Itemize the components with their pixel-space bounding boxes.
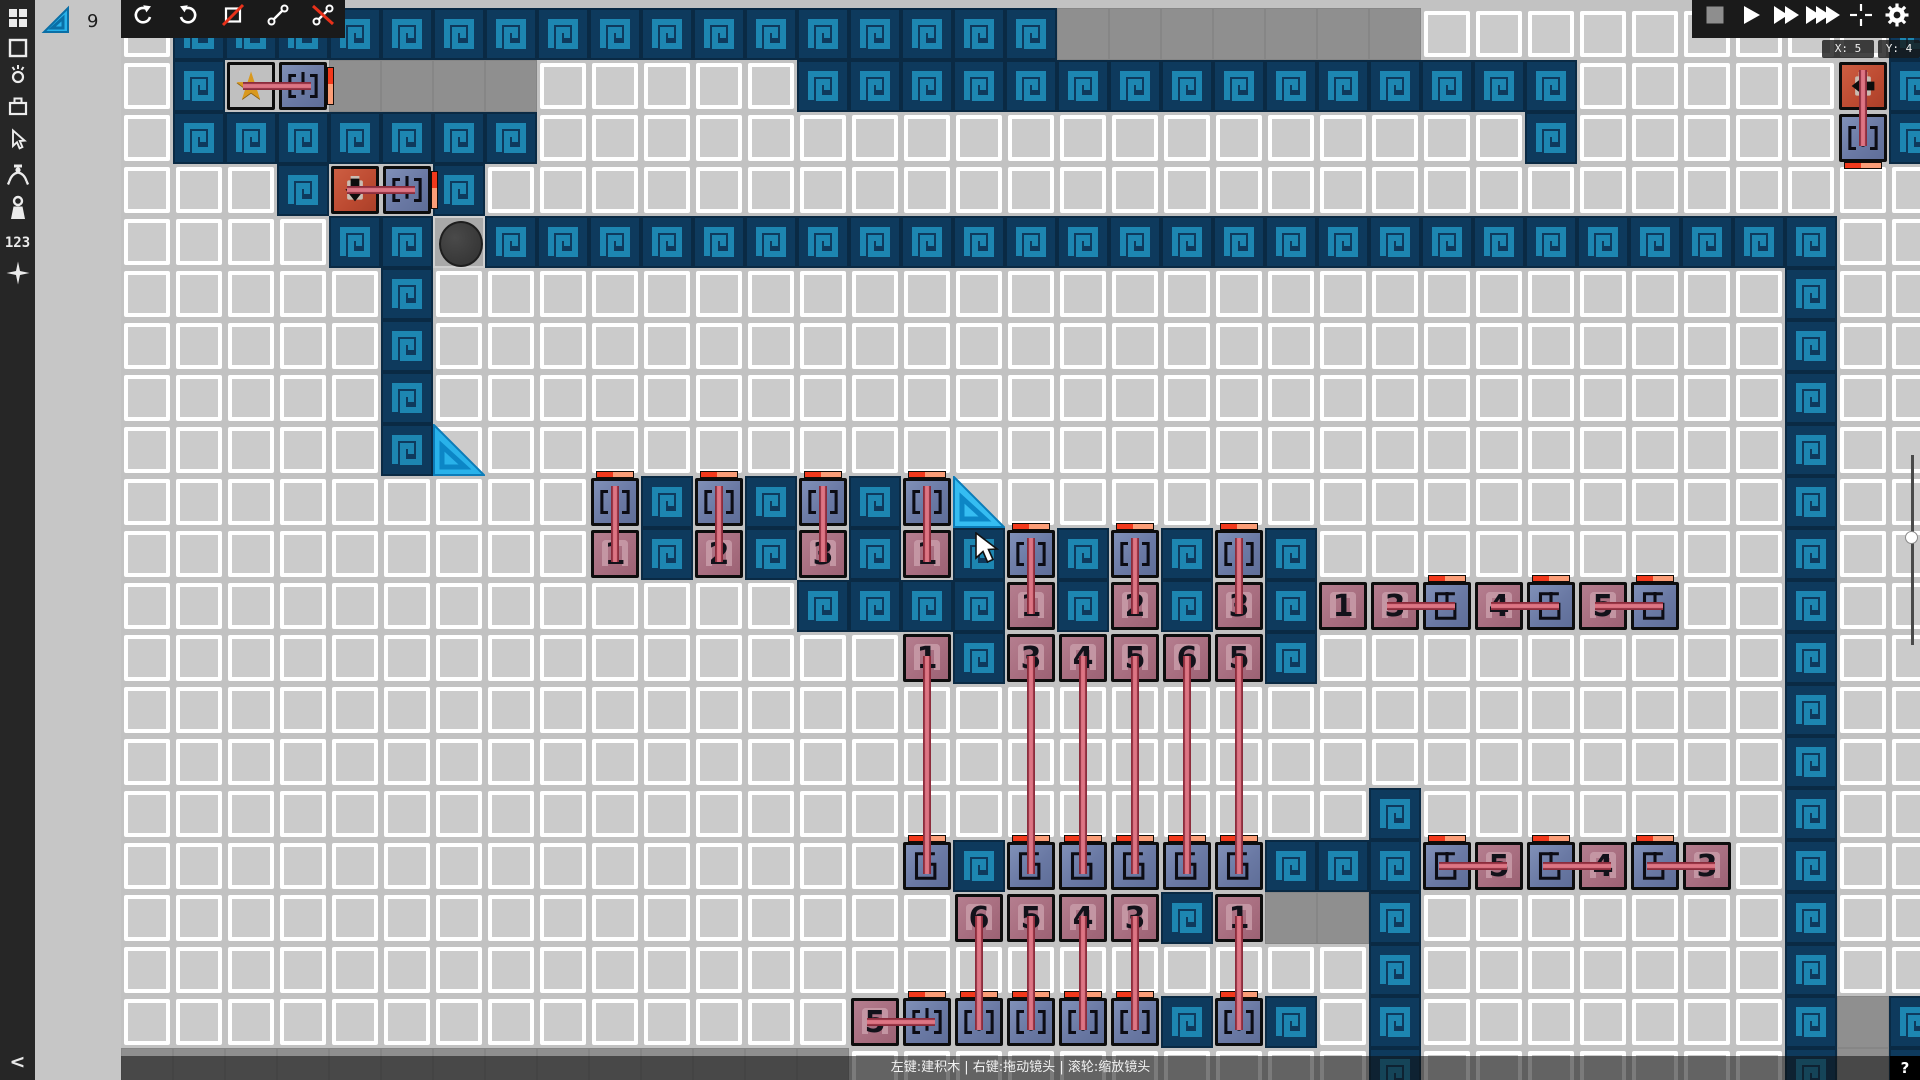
empty-tile[interactable] — [1424, 791, 1470, 837]
empty-tile[interactable] — [540, 323, 586, 369]
empty-tile[interactable] — [748, 635, 794, 681]
empty-tile[interactable] — [1320, 791, 1366, 837]
empty-tile[interactable] — [436, 843, 482, 889]
empty-tile[interactable] — [748, 323, 794, 369]
empty-tile[interactable] — [1008, 115, 1054, 161]
empty-tile[interactable] — [176, 791, 222, 837]
empty-tile[interactable] — [1372, 739, 1418, 785]
empty-tile[interactable] — [748, 427, 794, 473]
spiral-wall-tile[interactable] — [433, 164, 485, 216]
empty-tile[interactable] — [800, 739, 846, 785]
empty-tile[interactable] — [748, 271, 794, 317]
empty-tile[interactable] — [332, 531, 378, 577]
empty-tile[interactable] — [1736, 115, 1782, 161]
empty-tile[interactable] — [956, 687, 1002, 733]
empty-tile[interactable] — [488, 895, 534, 941]
grab-tool-button[interactable] — [0, 62, 35, 86]
empty-tile[interactable] — [1372, 115, 1418, 161]
empty-tile[interactable] — [1528, 323, 1574, 369]
empty-tile[interactable] — [1632, 167, 1678, 213]
empty-tile[interactable] — [1008, 271, 1054, 317]
empty-tile[interactable] — [1684, 583, 1730, 629]
empty-tile[interactable] — [1164, 115, 1210, 161]
spiral-wall-tile[interactable] — [1369, 996, 1421, 1048]
level-canvas[interactable]: ★12311231345134565543654315 — [0, 0, 1920, 1080]
empty-tile[interactable] — [124, 999, 170, 1045]
empty-tile[interactable] — [1528, 687, 1574, 733]
empty-tile[interactable] — [1684, 479, 1730, 525]
empty-tile[interactable] — [696, 635, 742, 681]
spiral-wall-tile[interactable] — [641, 528, 693, 580]
spiral-wall-tile[interactable] — [953, 840, 1005, 892]
spiral-wall-tile[interactable] — [1473, 60, 1525, 112]
empty-tile[interactable] — [1892, 583, 1920, 629]
spiral-wall-tile[interactable] — [1785, 320, 1837, 372]
spiral-wall-tile[interactable] — [1265, 632, 1317, 684]
empty-tile[interactable] — [540, 531, 586, 577]
empty-tile[interactable] — [1268, 115, 1314, 161]
spiral-wall-tile[interactable] — [1889, 112, 1920, 164]
spiral-wall-tile[interactable] — [849, 476, 901, 528]
empty-tile[interactable] — [1320, 947, 1366, 993]
empty-tile[interactable] — [1684, 635, 1730, 681]
empty-tile[interactable] — [852, 115, 898, 161]
empty-tile[interactable] — [488, 531, 534, 577]
empty-tile[interactable] — [696, 63, 742, 109]
empty-tile[interactable] — [1320, 323, 1366, 369]
spiral-wall-tile[interactable] — [849, 580, 901, 632]
empty-tile[interactable] — [1164, 427, 1210, 473]
empty-tile[interactable] — [228, 271, 274, 317]
empty-tile[interactable] — [1892, 895, 1920, 941]
empty-tile[interactable] — [852, 739, 898, 785]
empty-tile[interactable] — [1840, 271, 1886, 317]
spiral-wall-tile[interactable] — [1785, 528, 1837, 580]
empty-tile[interactable] — [644, 115, 690, 161]
empty-tile[interactable] — [1736, 791, 1782, 837]
empty-tile[interactable] — [1580, 791, 1626, 837]
spiral-wall-tile[interactable] — [1785, 684, 1837, 736]
empty-tile[interactable] — [800, 167, 846, 213]
empty-tile[interactable] — [436, 323, 482, 369]
empty-tile[interactable] — [1892, 739, 1920, 785]
empty-tile[interactable] — [1424, 323, 1470, 369]
empty-tile[interactable] — [280, 791, 326, 837]
empty-tile[interactable] — [1216, 375, 1262, 421]
empty-tile[interactable] — [1580, 947, 1626, 993]
spiral-wall-tile[interactable] — [797, 60, 849, 112]
spiral-wall-tile[interactable] — [1785, 268, 1837, 320]
sparkle-tool-button[interactable] — [0, 260, 35, 286]
spiral-wall-tile[interactable] — [1785, 632, 1837, 684]
spiral-wall-tile[interactable] — [1057, 60, 1109, 112]
empty-tile[interactable] — [852, 791, 898, 837]
empty-tile[interactable] — [1268, 271, 1314, 317]
empty-tile[interactable] — [1424, 271, 1470, 317]
empty-tile[interactable] — [1892, 687, 1920, 733]
empty-tile[interactable] — [696, 947, 742, 993]
empty-tile[interactable] — [176, 167, 222, 213]
empty-tile[interactable] — [228, 531, 274, 577]
spiral-wall-tile[interactable] — [277, 112, 329, 164]
empty-tile[interactable] — [540, 999, 586, 1045]
empty-tile[interactable] — [1320, 479, 1366, 525]
spiral-wall-tile[interactable] — [1785, 840, 1837, 892]
empty-tile[interactable] — [1840, 791, 1886, 837]
spiral-wall-tile[interactable] — [797, 580, 849, 632]
empty-tile[interactable] — [644, 63, 690, 109]
spiral-wall-tile[interactable] — [953, 632, 1005, 684]
empty-tile[interactable] — [332, 999, 378, 1045]
spiral-wall-tile[interactable] — [797, 8, 849, 60]
spiral-wall-tile[interactable] — [329, 216, 381, 268]
empty-tile[interactable] — [1424, 635, 1470, 681]
empty-tile[interactable] — [228, 947, 274, 993]
empty-tile[interactable] — [124, 739, 170, 785]
empty-tile[interactable] — [332, 895, 378, 941]
empty-tile[interactable] — [1892, 479, 1920, 525]
empty-tile[interactable] — [904, 947, 950, 993]
empty-tile[interactable] — [332, 427, 378, 473]
empty-tile[interactable] — [1736, 635, 1782, 681]
empty-tile[interactable] — [696, 427, 742, 473]
empty-tile[interactable] — [228, 167, 274, 213]
empty-tile[interactable] — [228, 687, 274, 733]
empty-tile[interactable] — [1216, 271, 1262, 317]
empty-tile[interactable] — [1684, 323, 1730, 369]
empty-tile[interactable] — [592, 375, 638, 421]
empty-tile[interactable] — [124, 167, 170, 213]
empty-tile[interactable] — [124, 219, 170, 265]
spiral-wall-tile[interactable] — [901, 60, 953, 112]
empty-tile[interactable] — [176, 323, 222, 369]
empty-tile[interactable] — [1164, 479, 1210, 525]
empty-tile[interactable] — [280, 219, 326, 265]
empty-tile[interactable] — [592, 271, 638, 317]
empty-tile[interactable] — [1840, 219, 1886, 265]
empty-tile[interactable] — [1476, 479, 1522, 525]
empty-tile[interactable] — [1892, 427, 1920, 473]
empty-tile[interactable] — [176, 375, 222, 421]
spiral-wall-tile[interactable] — [849, 216, 901, 268]
spiral-wall-tile[interactable] — [1161, 996, 1213, 1048]
empty-tile[interactable] — [176, 843, 222, 889]
empty-tile[interactable] — [1476, 635, 1522, 681]
empty-tile[interactable] — [904, 895, 950, 941]
empty-tile[interactable] — [956, 323, 1002, 369]
empty-tile[interactable] — [436, 531, 482, 577]
empty-tile[interactable] — [1216, 479, 1262, 525]
empty-tile[interactable] — [644, 271, 690, 317]
empty-tile[interactable] — [1840, 323, 1886, 369]
spiral-wall-tile[interactable] — [1785, 216, 1837, 268]
spiral-wall-tile[interactable] — [485, 112, 537, 164]
empty-tile[interactable] — [852, 271, 898, 317]
spiral-wall-tile[interactable] — [1889, 60, 1920, 112]
empty-tile[interactable] — [436, 635, 482, 681]
spiral-wall-tile[interactable] — [1369, 840, 1421, 892]
empty-tile[interactable] — [280, 843, 326, 889]
spiral-wall-tile[interactable] — [953, 60, 1005, 112]
ball[interactable] — [439, 221, 483, 267]
spiral-wall-tile[interactable] — [1785, 736, 1837, 788]
empty-tile[interactable] — [1528, 479, 1574, 525]
empty-tile[interactable] — [124, 583, 170, 629]
empty-tile[interactable] — [904, 115, 950, 161]
empty-tile[interactable] — [1684, 375, 1730, 421]
empty-tile[interactable] — [1580, 427, 1626, 473]
empty-tile[interactable] — [1476, 739, 1522, 785]
empty-tile[interactable] — [1788, 167, 1834, 213]
spiral-wall-tile[interactable] — [225, 112, 277, 164]
empty-tile[interactable] — [540, 271, 586, 317]
empty-tile[interactable] — [1320, 375, 1366, 421]
spiral-wall-tile[interactable] — [1109, 60, 1161, 112]
empty-tile[interactable] — [540, 115, 586, 161]
empty-tile[interactable] — [1320, 531, 1366, 577]
empty-tile[interactable] — [124, 687, 170, 733]
empty-tile[interactable] — [748, 999, 794, 1045]
empty-tile[interactable] — [1580, 323, 1626, 369]
spiral-wall-tile[interactable] — [589, 216, 641, 268]
empty-tile[interactable] — [1060, 167, 1106, 213]
empty-tile[interactable] — [228, 843, 274, 889]
empty-tile[interactable] — [1580, 271, 1626, 317]
empty-tile[interactable] — [1528, 947, 1574, 993]
empty-tile[interactable] — [1372, 687, 1418, 733]
empty-tile[interactable] — [1736, 739, 1782, 785]
empty-tile[interactable] — [1424, 115, 1470, 161]
empty-tile[interactable] — [1476, 999, 1522, 1045]
empty-tile[interactable] — [1424, 739, 1470, 785]
square-tool-button[interactable] — [0, 36, 35, 60]
empty-tile[interactable] — [1580, 63, 1626, 109]
empty-tile[interactable] — [852, 375, 898, 421]
empty-tile[interactable] — [1476, 791, 1522, 837]
empty-tile[interactable] — [280, 739, 326, 785]
empty-tile[interactable] — [1788, 63, 1834, 109]
empty-tile[interactable] — [644, 427, 690, 473]
empty-tile[interactable] — [1684, 167, 1730, 213]
empty-tile[interactable] — [124, 531, 170, 577]
empty-tile[interactable] — [280, 375, 326, 421]
empty-tile[interactable] — [540, 895, 586, 941]
empty-tile[interactable] — [1112, 115, 1158, 161]
empty-tile[interactable] — [488, 843, 534, 889]
settings-button[interactable] — [1882, 4, 1912, 34]
empty-tile[interactable] — [956, 375, 1002, 421]
empty-tile[interactable] — [1736, 531, 1782, 577]
empty-tile[interactable] — [592, 843, 638, 889]
zoom-slider-track[interactable] — [1911, 455, 1914, 645]
empty-tile[interactable] — [332, 583, 378, 629]
spiral-wall-tile[interactable] — [1577, 216, 1629, 268]
empty-tile[interactable] — [384, 531, 430, 577]
empty-tile[interactable] — [1320, 167, 1366, 213]
spiral-wall-tile[interactable] — [1525, 112, 1577, 164]
empty-tile[interactable] — [1736, 479, 1782, 525]
empty-tile[interactable] — [436, 687, 482, 733]
empty-tile[interactable] — [1424, 11, 1470, 57]
spiral-wall-tile[interactable] — [381, 112, 433, 164]
empty-tile[interactable] — [228, 427, 274, 473]
spiral-wall-tile[interactable] — [1785, 580, 1837, 632]
empty-tile[interactable] — [540, 427, 586, 473]
spiral-wall-tile[interactable] — [641, 216, 693, 268]
spiral-wall-tile[interactable] — [1005, 60, 1057, 112]
empty-tile[interactable] — [1736, 323, 1782, 369]
spiral-wall-tile[interactable] — [745, 216, 797, 268]
empty-tile[interactable] — [1268, 427, 1314, 473]
empty-tile[interactable] — [1372, 531, 1418, 577]
empty-tile[interactable] — [124, 115, 170, 161]
empty-tile[interactable] — [956, 167, 1002, 213]
empty-tile[interactable] — [332, 375, 378, 421]
empty-tile[interactable] — [228, 739, 274, 785]
empty-tile[interactable] — [1684, 271, 1730, 317]
empty-tile[interactable] — [1424, 895, 1470, 941]
empty-tile[interactable] — [1112, 427, 1158, 473]
empty-tile[interactable] — [1840, 635, 1886, 681]
empty-tile[interactable] — [1424, 687, 1470, 733]
empty-tile[interactable] — [1736, 999, 1782, 1045]
empty-tile[interactable] — [1684, 895, 1730, 941]
spiral-wall-tile[interactable] — [1265, 840, 1317, 892]
empty-tile[interactable] — [1112, 271, 1158, 317]
rect-delete-button[interactable] — [218, 4, 248, 34]
empty-tile[interactable] — [540, 635, 586, 681]
empty-tile[interactable] — [540, 583, 586, 629]
empty-tile[interactable] — [592, 115, 638, 161]
spiral-wall-tile[interactable] — [849, 8, 901, 60]
empty-tile[interactable] — [1632, 323, 1678, 369]
empty-tile[interactable] — [592, 167, 638, 213]
empty-tile[interactable] — [1164, 271, 1210, 317]
empty-tile[interactable] — [1476, 115, 1522, 161]
unlink-button[interactable] — [308, 4, 338, 34]
empty-tile[interactable] — [1840, 427, 1886, 473]
empty-tile[interactable] — [1736, 427, 1782, 473]
empty-tile[interactable] — [488, 739, 534, 785]
spiral-wall-tile[interactable] — [1785, 788, 1837, 840]
spiral-wall-tile[interactable] — [485, 8, 537, 60]
empty-tile[interactable] — [1788, 115, 1834, 161]
empty-tile[interactable] — [1528, 739, 1574, 785]
empty-tile[interactable] — [1632, 63, 1678, 109]
empty-tile[interactable] — [1684, 531, 1730, 577]
empty-tile[interactable] — [124, 843, 170, 889]
spiral-wall-tile[interactable] — [641, 8, 693, 60]
empty-tile[interactable] — [1580, 479, 1626, 525]
empty-tile[interactable] — [124, 947, 170, 993]
spiral-wall-tile[interactable] — [537, 8, 589, 60]
empty-tile[interactable] — [384, 635, 430, 681]
empty-tile[interactable] — [904, 375, 950, 421]
empty-tile[interactable] — [1736, 687, 1782, 733]
empty-tile[interactable] — [124, 271, 170, 317]
empty-tile[interactable] — [1528, 895, 1574, 941]
empty-tile[interactable] — [696, 167, 742, 213]
empty-tile[interactable] — [1372, 427, 1418, 473]
empty-tile[interactable] — [748, 687, 794, 733]
spiral-wall-tile[interactable] — [901, 216, 953, 268]
empty-tile[interactable] — [540, 843, 586, 889]
spiral-wall-tile[interactable] — [381, 8, 433, 60]
empty-tile[interactable] — [644, 687, 690, 733]
empty-tile[interactable] — [1372, 323, 1418, 369]
empty-tile[interactable] — [1632, 895, 1678, 941]
empty-tile[interactable] — [696, 115, 742, 161]
empty-tile[interactable] — [748, 583, 794, 629]
empty-tile[interactable] — [436, 791, 482, 837]
spiral-wall-tile[interactable] — [1785, 476, 1837, 528]
empty-tile[interactable] — [1268, 479, 1314, 525]
empty-tile[interactable] — [1112, 323, 1158, 369]
empty-tile[interactable] — [1632, 531, 1678, 577]
empty-tile[interactable] — [1372, 271, 1418, 317]
empty-tile[interactable] — [1892, 791, 1920, 837]
empty-tile[interactable] — [1632, 375, 1678, 421]
empty-tile[interactable] — [592, 635, 638, 681]
empty-tile[interactable] — [228, 791, 274, 837]
empty-tile[interactable] — [1632, 635, 1678, 681]
empty-tile[interactable] — [436, 271, 482, 317]
spiral-wall-tile[interactable] — [537, 216, 589, 268]
empty-tile[interactable] — [1424, 999, 1470, 1045]
empty-tile[interactable] — [1320, 271, 1366, 317]
slope-tile-preview[interactable] — [953, 476, 1005, 528]
spiral-wall-tile[interactable] — [173, 60, 225, 112]
empty-tile[interactable] — [644, 947, 690, 993]
undo-button[interactable] — [128, 4, 158, 34]
empty-tile[interactable] — [1840, 895, 1886, 941]
spiral-wall-tile[interactable] — [1369, 788, 1421, 840]
spiral-wall-tile[interactable] — [1889, 996, 1920, 1048]
spiral-wall-tile[interactable] — [1213, 60, 1265, 112]
spiral-wall-tile[interactable] — [693, 216, 745, 268]
empty-tile[interactable] — [1268, 739, 1314, 785]
apps-grid-button[interactable] — [0, 6, 35, 30]
claw-tool-button[interactable] — [0, 162, 35, 188]
spiral-wall-tile[interactable] — [589, 8, 641, 60]
empty-tile[interactable] — [644, 583, 690, 629]
empty-tile[interactable] — [1632, 479, 1678, 525]
box-tool-button[interactable] — [0, 94, 35, 118]
empty-tile[interactable] — [696, 739, 742, 785]
spiral-wall-tile[interactable] — [1317, 60, 1369, 112]
empty-tile[interactable] — [436, 947, 482, 993]
empty-tile[interactable] — [1476, 271, 1522, 317]
empty-tile[interactable] — [1424, 531, 1470, 577]
empty-tile[interactable] — [540, 375, 586, 421]
redo-button[interactable] — [173, 4, 203, 34]
empty-tile[interactable] — [1580, 687, 1626, 733]
empty-tile[interactable] — [1372, 167, 1418, 213]
spiral-wall-tile[interactable] — [901, 8, 953, 60]
empty-tile[interactable] — [1840, 687, 1886, 733]
empty-tile[interactable] — [540, 479, 586, 525]
empty-tile[interactable] — [228, 479, 274, 525]
empty-tile[interactable] — [1840, 583, 1886, 629]
spiral-wall-tile[interactable] — [1161, 580, 1213, 632]
spiral-wall-tile[interactable] — [381, 268, 433, 320]
empty-tile[interactable] — [1320, 115, 1366, 161]
empty-tile[interactable] — [1216, 427, 1262, 473]
empty-tile[interactable] — [904, 167, 950, 213]
empty-tile[interactable] — [280, 895, 326, 941]
empty-tile[interactable] — [1684, 739, 1730, 785]
empty-tile[interactable] — [280, 323, 326, 369]
